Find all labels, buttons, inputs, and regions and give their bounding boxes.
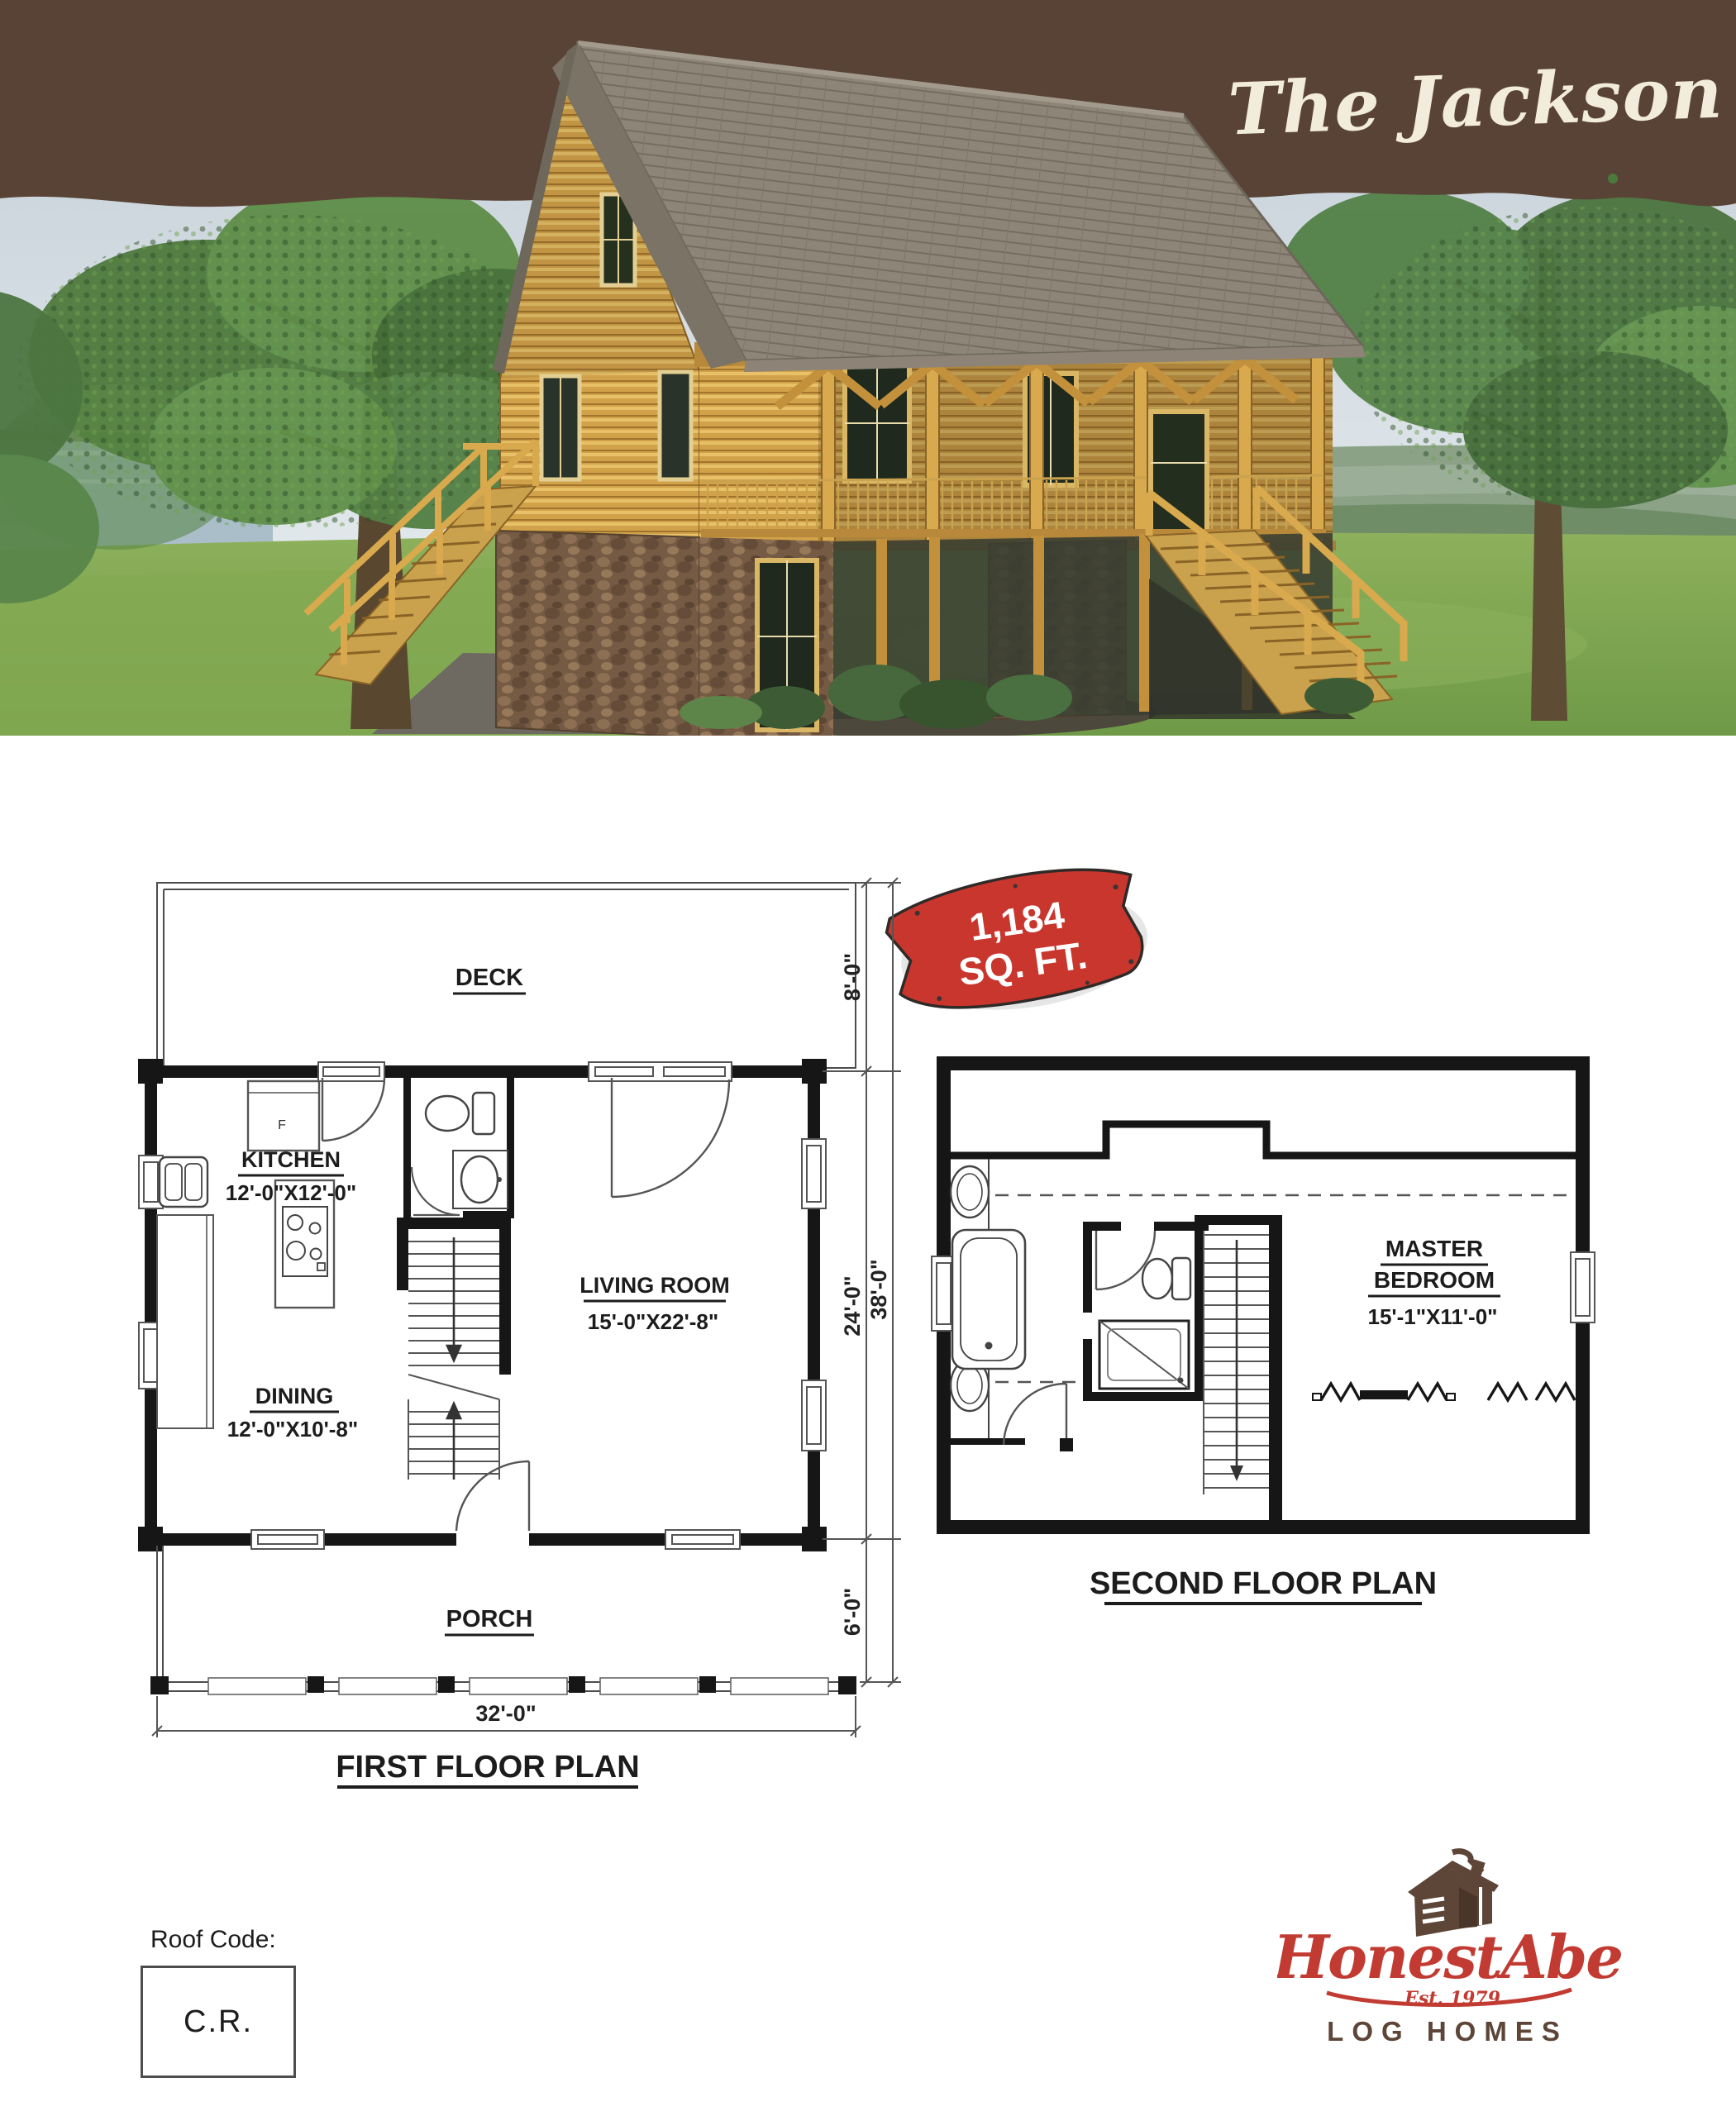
honest-abe-logo: HonestAbe Est. 1979 LOG HOMES: [1277, 1847, 1624, 2079]
deck-label: DECK: [455, 965, 523, 991]
sqft-badge: 1,184 SQ. FT.: [875, 861, 1164, 1027]
roof-code-label: Roof Code:: [150, 1926, 296, 1954]
roof-code-block: Roof Code: C.R.: [141, 1926, 296, 2078]
dining-label: DINING: [255, 1384, 334, 1408]
sf-inner-wall: [951, 1124, 1576, 1156]
dim-overall-depth: 38'-0": [866, 1259, 891, 1319]
kitchen-label: KITCHEN: [241, 1147, 341, 1172]
logo-est: Est. 1979: [1404, 1988, 1500, 2009]
kitchen-fixtures: F: [157, 1081, 334, 1428]
first-floor-plan-title: FIRST FLOOR PLAN: [336, 1750, 639, 1785]
living-room-label: LIVING ROOM: [579, 1273, 730, 1298]
kitchen-dims: 12'-0"X12'-0": [226, 1180, 356, 1205]
master-dims: 15'-1"X11'-0": [1367, 1304, 1497, 1329]
dim-porch-depth: 6'-0": [840, 1588, 865, 1636]
dim-overall-width: 32'-0": [475, 1701, 536, 1726]
leaf-speck: [1608, 174, 1618, 183]
front-door: [1151, 412, 1207, 546]
porch-label: PORCH: [446, 1606, 533, 1632]
second-floor-plan-title: SECOND FLOOR PLAN: [1090, 1566, 1437, 1601]
roof-code-box: C.R.: [141, 1966, 296, 2078]
roof-code-value: C.R.: [184, 2004, 253, 2040]
second-floor-plan: MASTER BEDROOM 15'-1"X11'-0" SECOND FLOO…: [913, 1025, 1657, 1620]
hero-photo: The Jackson: [0, 0, 1736, 736]
fridge-label: F: [278, 1118, 286, 1132]
first-floor-plan: DECK: [79, 851, 905, 1794]
inner-bathroom: [1083, 1222, 1209, 1401]
master-bath: [951, 1159, 1073, 1451]
stairs: [397, 1218, 511, 1480]
logo-sub: LOG HOMES: [1327, 2016, 1568, 2047]
master-label-1: MASTER: [1385, 1236, 1483, 1261]
dim-main-depth: 24'-0": [840, 1275, 865, 1336]
bathroom: [403, 1078, 514, 1218]
page-title: The Jackson: [1227, 51, 1724, 152]
master-label-2: BEDROOM: [1374, 1267, 1495, 1293]
knee-wall-symbols: [1313, 1384, 1575, 1400]
dining-dims: 12'-0"X10'-8": [227, 1417, 358, 1442]
dim-deck-depth: 8'-0": [840, 953, 865, 1001]
windows: [139, 1062, 826, 1549]
logo-script: HonestAbe: [1277, 1922, 1622, 1992]
door-swings: [322, 1078, 729, 1531]
living-room-dims: 15'-0"X22'-8": [588, 1309, 718, 1334]
sf-stairs: [1195, 1215, 1282, 1534]
